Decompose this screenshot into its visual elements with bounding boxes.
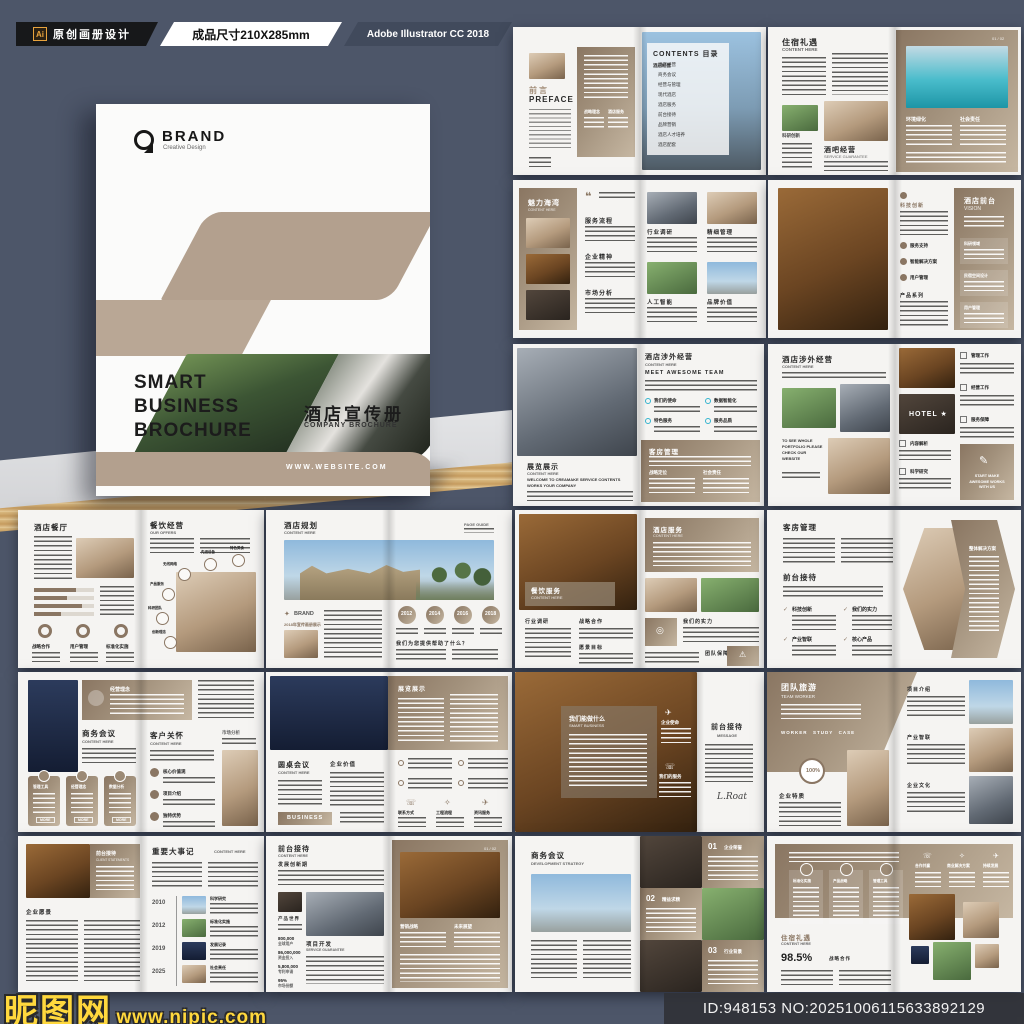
lines	[71, 793, 93, 813]
spread-milestones: 前台接待 CLIENT STATEMENTS 企业愿景 重要大事记 CONTEN…	[18, 836, 264, 992]
team-tags: WORKER STUDY CASE	[781, 730, 855, 736]
square-bullet	[899, 468, 906, 475]
lines	[964, 249, 1004, 259]
care-bullet-2: 项目介绍	[163, 791, 181, 797]
lines	[82, 748, 136, 766]
lines	[608, 117, 628, 129]
contents-item: 经营与管理	[658, 82, 681, 88]
foreign-item-4: 内容解析	[910, 441, 928, 447]
timeline-axis	[176, 896, 177, 986]
lines	[529, 157, 551, 167]
lines	[100, 586, 134, 616]
lines	[824, 161, 888, 171]
photo-hotel-lobby-night	[778, 188, 888, 330]
cta-text: START MAKE AWESOME WORKS WITH US	[967, 474, 1007, 491]
lines	[579, 628, 633, 640]
business-button: BUSINESS	[278, 812, 332, 825]
photo-lobby-lounge	[847, 750, 889, 826]
strategy-number-1: 01	[708, 842, 717, 851]
stat-value-3: 5,800,000	[278, 964, 298, 969]
statement-heading-en: CLIENT STATEMENTS	[96, 858, 129, 862]
photo-lounge	[640, 836, 702, 888]
vision-card-1-label: 科研领域	[964, 241, 980, 247]
timeline-year: 2019	[152, 946, 165, 952]
orbit-icon	[162, 588, 175, 601]
welfare-card-3-label: 管理工具	[873, 879, 887, 884]
strategy-number-2: 02	[646, 894, 655, 903]
lines	[210, 949, 258, 960]
lines	[714, 406, 757, 414]
photo-chef	[526, 290, 570, 320]
orbit-label-4: 产品服务	[150, 582, 164, 587]
project-heading-en: SERVICE GUARANTEE	[306, 948, 344, 952]
stat-label-3: 专利申请	[278, 970, 293, 975]
lines	[306, 956, 384, 984]
rooms-check-1: 科技创新	[792, 606, 812, 613]
lines	[278, 780, 322, 806]
lines	[782, 372, 886, 381]
brand-mark-text: BRAND	[294, 611, 314, 617]
lines	[400, 954, 500, 982]
welfare-heading-en: CONTENT HERE	[781, 942, 811, 946]
brand-logo-triangle	[144, 144, 153, 153]
care-bullet-icon	[150, 790, 159, 799]
team-bullet-3: 特色服务	[654, 418, 672, 424]
orbit-label-6: 创新理念	[152, 630, 166, 635]
meeting-card-1-label: 管理工具	[33, 785, 48, 790]
lines	[599, 192, 635, 200]
lines	[33, 793, 55, 813]
rooms-check-2: 我们的实力	[852, 606, 877, 613]
orbit-label-5: 科研团队	[148, 606, 162, 611]
develop-right-col2: 未来展望	[454, 924, 472, 930]
lines	[278, 924, 302, 932]
lines	[707, 237, 757, 253]
mission-label: 企业使命	[661, 720, 679, 726]
lines	[585, 298, 635, 316]
spread-bay: 魅力海湾 CONTENT HERE ❝ 服务流程 企业精神 市场分析 行业调研 …	[513, 180, 766, 338]
spread-welfare: 标准化实施 产品战略 管理工具 ☏ 合作共赢 ✧ 商业解决方案 ✈ 持续发展	[767, 836, 1021, 992]
vision-panel: 酒店前台 VISION 科研领域 民宿空间设计 用户管理	[954, 188, 1014, 330]
top-bar: Ai 原创画册设计 成品尺寸210X285mm Adobe Illustrato…	[0, 22, 512, 46]
bullet-icon	[645, 418, 651, 424]
team-heading-en: TEAM WORKER	[781, 694, 815, 699]
foreign-heading-en: CONTENT HERE	[782, 364, 814, 369]
lines	[708, 960, 758, 984]
lines	[783, 538, 835, 564]
bay-quad-2: 精细管理	[707, 228, 733, 236]
foreign-item-3: 服务保障	[971, 417, 989, 423]
watermark-site-url: www.nipic.com	[116, 1007, 267, 1024]
care-bullet-icon	[150, 812, 159, 821]
vision-card-2: 民宿空间设计	[960, 270, 1008, 296]
orbit-icon	[204, 558, 217, 571]
planning-heading-en: CONTENT HERE	[284, 530, 316, 535]
donut-chart	[38, 624, 52, 638]
milestones-heading-en: CONTENT HERE	[214, 849, 246, 854]
lines	[340, 812, 384, 824]
team-bullet-1: 我们的使命	[654, 398, 677, 404]
signature: L.Roat	[717, 792, 747, 802]
more-button: MORE	[74, 817, 93, 823]
team-bullet-2: 数据智能化	[714, 398, 737, 404]
page-number: 01 / 02	[992, 36, 1004, 41]
lines	[781, 704, 861, 720]
strategy-label-2: 精益求精	[662, 897, 680, 903]
care-heading-en: CONTENT HERE	[150, 741, 182, 746]
id-bar: ID:948153 NO:20251006115633892129	[664, 993, 1024, 1024]
lines	[653, 542, 751, 566]
lines	[703, 478, 749, 496]
ai-logo-icon: Ai	[33, 27, 47, 41]
lines	[852, 615, 892, 631]
photo-resort-render	[707, 262, 757, 294]
housekeeping-col2: 社会责任	[703, 470, 721, 476]
lines	[163, 799, 215, 807]
lines	[84, 920, 140, 982]
photo-circle-bottle	[911, 946, 929, 964]
lines	[781, 970, 833, 986]
feature-2-label: 工程流程	[436, 810, 452, 816]
timeline-photo	[182, 919, 206, 937]
phone-icon: ☏	[665, 762, 675, 771]
brand-tagline: Creative Design	[163, 145, 206, 151]
lines	[782, 143, 812, 169]
rooms-check-4: 核心产品	[852, 636, 872, 643]
skill-bar	[34, 588, 94, 592]
card-icon	[76, 770, 88, 782]
lines	[683, 627, 759, 643]
lines	[527, 491, 633, 501]
exhibition-subline: WELCOME TO CREAMAKE SERVICE CONTENTS WOR…	[527, 477, 633, 489]
panel-feature-2: 酒店服务	[608, 109, 624, 115]
bullet-icon	[705, 418, 711, 424]
statement-panel: 前台接待 CLIENT STATEMENTS	[90, 844, 140, 898]
page-number: 01 / 02	[484, 846, 496, 851]
milestones-heading-cn: 重要大事记	[152, 846, 195, 857]
lines	[960, 395, 1014, 409]
bullet-icon	[900, 258, 907, 265]
lines	[646, 908, 696, 932]
lines	[907, 792, 965, 814]
top-bar-badge-segment: Ai 原创画册设计	[16, 22, 158, 46]
lodging-heading-en: CONTENT HERE	[782, 47, 818, 52]
photo-circle-keycard	[963, 902, 999, 938]
value-col-label: 企业价值	[330, 760, 356, 768]
planning-corner-label: PAGE GUIDE	[464, 522, 489, 527]
spread-team: 团队旅游 TEAM WORKER WORKER STUDY CASE 100% …	[767, 672, 1021, 832]
lines	[969, 556, 999, 632]
welfare-card-1: 标准化实施	[789, 870, 823, 924]
lines	[452, 649, 498, 661]
lines	[110, 694, 184, 714]
bay-item-1: 服务流程	[585, 216, 613, 225]
care-heading-cn: 客户关怀	[150, 730, 184, 741]
orbit-icon	[156, 612, 169, 625]
lines	[480, 628, 502, 636]
lines	[529, 109, 571, 151]
plane-icon: ✈	[993, 852, 999, 860]
stat-value-1: 800,000	[278, 936, 294, 941]
smart-heading-en: SMART BUSINESS	[569, 723, 604, 728]
phone-icon: ☏	[923, 852, 932, 860]
quote-icon: ❝	[585, 190, 591, 203]
dining-heading-cn: 餐饮服务	[531, 585, 561, 595]
lodging-right-col2: 社会责任	[960, 116, 980, 123]
spread-smart-business: 我们能做什么 SMART BUSINESS ✈ 企业使命 ☏ 我们的服务 前台接…	[515, 672, 764, 832]
lines	[398, 698, 444, 742]
lines	[659, 782, 691, 798]
photo-waitress	[969, 728, 1013, 772]
more-button: MORE	[36, 817, 55, 823]
lines	[198, 680, 254, 720]
timeline-year: 2010	[152, 900, 165, 906]
team-subheading: 企业特质	[779, 792, 805, 800]
skill-bar	[34, 604, 94, 608]
lines	[964, 216, 1004, 230]
timeline-label-3: 发展记录	[210, 942, 226, 948]
lines	[647, 237, 697, 253]
lines	[436, 817, 464, 827]
bullet-icon	[398, 780, 404, 786]
photo-vacuum-cleaning	[400, 852, 500, 918]
photo-bedroom	[824, 101, 888, 141]
watermark-site-name: 昵图网	[4, 993, 112, 1024]
orbit-icon	[232, 554, 245, 567]
lines	[779, 802, 841, 826]
more-button: MORE	[112, 817, 131, 823]
lines	[841, 538, 893, 564]
page-fold	[134, 510, 148, 668]
lines	[649, 456, 751, 466]
timeline-year: 2012	[152, 923, 165, 929]
lines	[398, 817, 426, 827]
lines	[906, 152, 1006, 166]
photo-lobby-small	[529, 53, 565, 79]
lines	[330, 772, 384, 806]
lines	[839, 970, 891, 986]
spread-strategy: 商务会议 DEVELOPMENT STRATEGY 01 企业荣誉 02 精益求…	[515, 836, 764, 992]
photo-chef-plating	[640, 940, 702, 992]
bay-sidebar: 魅力海湾 CONTENT HERE	[519, 188, 577, 330]
card-icon	[800, 863, 813, 876]
bullet-icon	[900, 192, 907, 199]
vision-bullet-3: 用户管理	[910, 275, 928, 281]
lines	[792, 645, 836, 659]
lines	[983, 872, 1009, 888]
target-tile: ◎	[645, 618, 677, 646]
develop-heading-cn: 前台接待	[278, 844, 310, 854]
timeline-year-4: 2018	[485, 611, 496, 617]
card-icon	[840, 863, 853, 876]
meeting-heading-cn: 商务会议	[82, 728, 116, 739]
lines	[278, 870, 384, 886]
lines	[583, 940, 631, 980]
lines	[210, 903, 258, 914]
strategy-label-1: 企业荣誉	[724, 845, 742, 851]
vision-card-3: 用户管理	[960, 302, 1008, 328]
lines	[468, 758, 508, 772]
lines	[450, 694, 498, 742]
team-row1-label: 项目介绍	[907, 686, 931, 693]
design-preview-canvas: Ai 原创画册设计 成品尺寸210X285mm Adobe Illustrato…	[0, 0, 1024, 1024]
top-bar-software-label: Adobe Illustrator CC 2018	[367, 29, 489, 40]
skill-bar	[34, 612, 94, 616]
spread-preface-contents: 前言 PREFACE 战略理念 酒店服务 CONTENTS 目录 酒店经营 酒店…	[513, 27, 766, 175]
check-icon: ✓	[843, 636, 848, 643]
lodging-right-col1: 环境绿化	[906, 116, 926, 123]
photo-room-dark	[526, 254, 570, 284]
photo-waiter	[647, 192, 697, 224]
photo-billiards	[702, 888, 764, 940]
photo-resort-render	[531, 874, 631, 932]
lines	[645, 652, 699, 664]
smart-heading-cn: 我们能做什么	[569, 714, 605, 723]
photo-interior-gold	[828, 438, 890, 494]
contents-item: 商务会议	[658, 72, 676, 78]
spread-foreign-operations: 酒店涉外经营 CONTENT HERE TO SEE WHOLE PORTFOL…	[768, 344, 1021, 506]
exhibit-panel-label: 展览展示	[398, 684, 426, 693]
product-world-label: 产品世界	[278, 916, 300, 922]
timeline-photo	[182, 942, 206, 960]
bullet-icon	[900, 274, 907, 281]
photo-bedroom-circle	[176, 572, 256, 652]
solution-label: 整体解决方案	[969, 546, 996, 552]
square-bullet	[899, 440, 906, 447]
vision-col2-label: 产品系列	[900, 292, 924, 299]
exhibit-panel: 展览展示	[388, 676, 508, 750]
cover-shape-band	[96, 300, 271, 356]
lines	[645, 380, 757, 392]
top-bar-size-segment: 成品尺寸210X285mm	[160, 22, 342, 46]
bullet-icon	[900, 242, 907, 249]
feature-3-label: 资讯服务	[474, 810, 490, 816]
spread-rooms-solution: 客房管理 前台接待 ✓ 科技创新 ✓ 我们的实力 ✓ 产业智联 ✓ 核心产品 整…	[767, 510, 1021, 668]
welfare-card-2-label: 产品战略	[833, 879, 847, 884]
develop-right-col1: 营销战略	[400, 924, 418, 930]
photo-landscape	[782, 388, 836, 428]
spread-restaurant: 酒店餐厅 战略合作 用户管理 标准化实施 餐饮经营 OUR OFFERS 先进设…	[18, 510, 264, 668]
lines	[782, 472, 820, 478]
lines	[647, 307, 697, 323]
photo-suite	[526, 218, 570, 248]
banner-label: 经营理念	[110, 686, 130, 693]
photo-bed	[707, 192, 757, 224]
photo-hotel-sign: HOTEL ★	[899, 394, 955, 434]
spread-lodging: 住宿礼遇 CONTENT HERE 科研创新 酒吧经营 SERVICE GUAR…	[768, 27, 1021, 175]
develop-subheading: 发展创新期	[278, 861, 308, 868]
cover-title-line2: BUSINESS	[134, 396, 239, 418]
lines	[396, 649, 446, 661]
vision-card-1: 科研领域	[960, 238, 1008, 264]
dining-col-3: 愿景目标	[579, 644, 603, 651]
vision-subheading: 企业愿景	[26, 908, 52, 916]
team-header-wedge: 团队旅游 TEAM WORKER WORKER STUDY CASE	[767, 672, 917, 772]
planning-question: 我们为您提供帮助了什么？	[396, 640, 468, 647]
housekeeping-heading: 客房管理	[649, 446, 679, 456]
message-heading-cn: 前台接待	[711, 722, 743, 732]
strategy-number-3: 03	[708, 946, 717, 955]
lines	[654, 406, 700, 414]
bay-heading-cn: 魅力海湾	[528, 198, 560, 208]
bullet-icon	[398, 760, 404, 766]
photo-interior-small	[284, 630, 318, 658]
plane-icon: ✈	[482, 798, 489, 807]
top-bar-size-label: 成品尺寸210X285mm	[192, 26, 309, 43]
team-row3-label: 企业文化	[907, 782, 931, 789]
contents-item: 现代酒店	[658, 92, 676, 98]
bay-quad-1: 行业调研	[647, 228, 673, 236]
care-bullet-3: 独特优势	[163, 813, 181, 819]
donut-label-1: 战略合作	[32, 644, 50, 650]
lodging-caption: 科研创新	[782, 133, 800, 139]
lines	[584, 117, 604, 129]
exhibition-heading-en: CONTENT HERE	[527, 471, 559, 476]
contents-item: 酒店服务	[658, 102, 676, 108]
dining-col-1: 行业调研	[525, 618, 549, 625]
lines	[408, 758, 452, 772]
donut-chart	[76, 624, 90, 638]
welfare-card-3: 管理工具	[869, 870, 903, 924]
concept-banner: 经营理念	[82, 680, 192, 720]
lines	[960, 125, 1006, 147]
target-icon: ◎	[656, 625, 664, 636]
stat-value-2: 86,000,000	[278, 950, 301, 955]
message-heading-en: MESSAGE	[717, 733, 737, 738]
team-badge-value: 100%	[806, 768, 820, 774]
lines	[899, 478, 951, 490]
skill-bar	[34, 596, 94, 600]
lines	[222, 738, 256, 746]
photo-businessmen-wine	[517, 348, 637, 456]
roundtable-heading-cn: 圆桌会议	[278, 760, 310, 770]
lines	[852, 645, 892, 659]
orbit-label-1: 无线网络	[163, 562, 177, 567]
lines	[396, 628, 418, 636]
lines	[964, 313, 1004, 323]
timeline-label-4: 社会责任	[210, 965, 226, 971]
lines	[654, 426, 700, 434]
cover-title-line1: SMART	[134, 372, 207, 394]
site-watermark: 昵图网 www.nipic.com	[4, 984, 267, 1024]
photo-meeting-small	[278, 892, 302, 912]
donut-chart	[114, 624, 128, 638]
photo-theatre	[899, 348, 955, 388]
smart-overlay-panel: 我们能做什么 SMART BUSINESS	[561, 706, 657, 798]
alert-tile: ⚠	[727, 646, 759, 666]
lines	[900, 301, 948, 327]
lines	[579, 653, 633, 665]
bulb-icon: ✧	[444, 798, 451, 807]
team-subheading: MEET AWESOME TEAM	[645, 370, 724, 376]
cover-title-line3: BROCHURE	[134, 420, 252, 442]
dining-overlay-label: 餐饮服务 CONTENT HERE	[525, 582, 615, 606]
lines	[793, 887, 819, 917]
rooms-heading-1: 客房管理	[783, 522, 817, 533]
team-heading-cn: 团队旅游	[781, 682, 817, 693]
restaurant-heading: 酒店餐厅	[34, 522, 68, 533]
lines	[106, 652, 134, 662]
business-button-label: BUSINESS	[287, 815, 323, 821]
lines	[109, 793, 131, 813]
preface-heading-en: PREFACE	[529, 95, 574, 104]
pencil-icon: ✎	[979, 454, 988, 467]
lines	[452, 628, 474, 636]
lines	[163, 777, 215, 785]
cta-panel: ✎ START MAKE AWESOME WORKS WITH US	[960, 444, 1014, 500]
team-row2-label: 产业智联	[907, 734, 931, 741]
lines	[408, 778, 452, 792]
